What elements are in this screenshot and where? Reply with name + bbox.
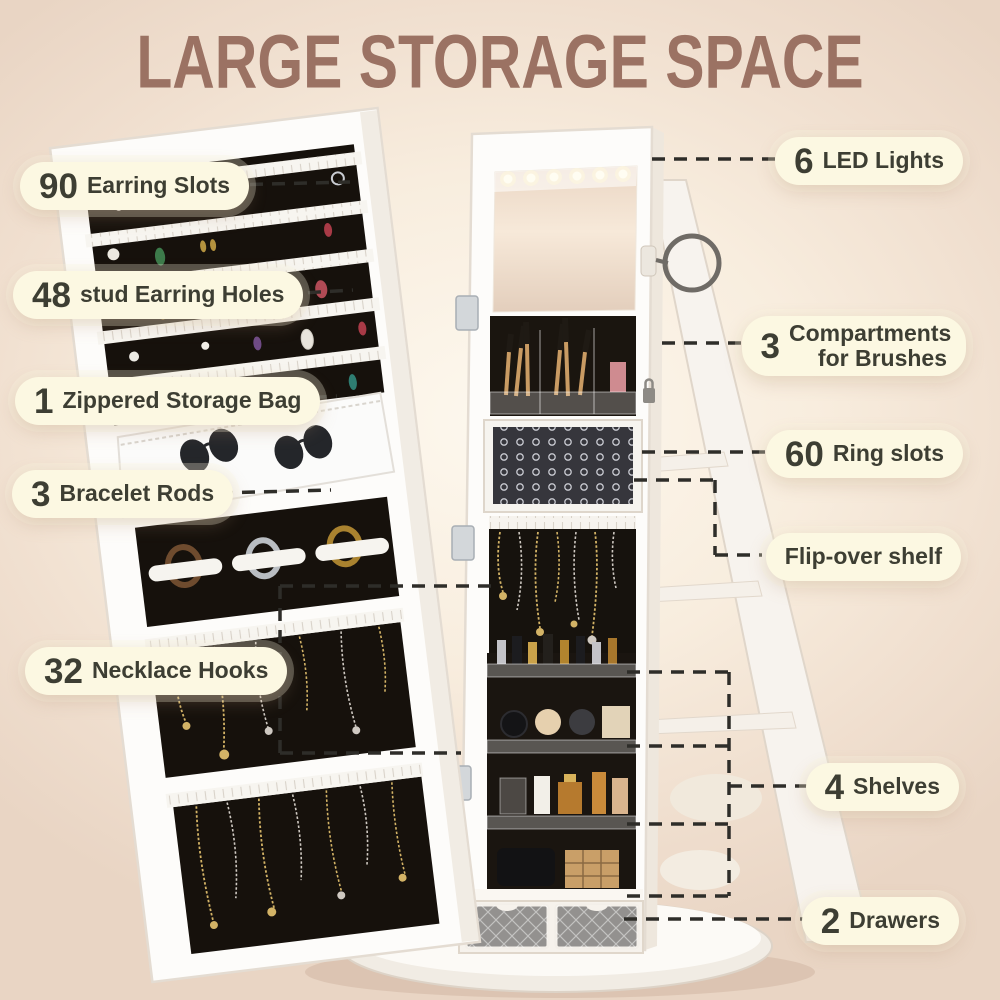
cabinet-body — [459, 127, 664, 953]
callout-label: LED Lights — [823, 148, 944, 173]
callout-number: 2 — [821, 904, 840, 939]
callout-label: Drawers — [849, 908, 940, 933]
callout-label: Compartments for Brushes — [789, 321, 947, 372]
callout-flip-over-shelf: Flip-over shelf — [766, 533, 961, 581]
callout-label: Earring Slots — [87, 173, 230, 198]
shelves-area — [487, 634, 636, 891]
callout-number: 60 — [785, 437, 824, 472]
callout-number: 90 — [39, 169, 78, 204]
page-title: LARGE STORAGE SPACE — [40, 18, 960, 105]
callout-label: Necklace Hooks — [92, 658, 268, 683]
callout-label: Flip-over shelf — [785, 544, 942, 569]
callout-number: 1 — [34, 384, 53, 419]
mirror — [493, 166, 637, 312]
callout-number: 6 — [794, 144, 813, 179]
drawers — [459, 901, 643, 953]
callout-number: 3 — [761, 329, 780, 364]
callout-brush-compartments: 3 Compartments for Brushes — [742, 316, 966, 376]
callout-label: Ring slots — [833, 441, 944, 466]
callout-drawers: 2 Drawers — [802, 897, 959, 945]
callout-label: Shelves — [853, 774, 940, 799]
callout-number: 4 — [825, 770, 844, 805]
brush-compartments — [490, 316, 636, 416]
callout-zippered-storage-bag: 1 Zippered Storage Bag — [15, 377, 320, 425]
callout-number: 3 — [31, 477, 50, 512]
callout-shelves: 4 Shelves — [806, 763, 959, 811]
callout-stud-earring-holes: 48 stud Earring Holes — [13, 271, 303, 319]
storage-infographic: LARGE STORAGE SPACE 90 Earring Slots 48 … — [0, 0, 1000, 1000]
cabinet-door — [50, 108, 480, 982]
callout-number: 32 — [44, 654, 83, 689]
callout-earring-slots: 90 Earring Slots — [20, 162, 249, 210]
callout-bracelet-rods: 3 Bracelet Rods — [12, 470, 233, 518]
ring-slots-tray — [484, 420, 642, 512]
callout-necklace-hooks: 32 Necklace Hooks — [25, 647, 287, 695]
callout-label: Zippered Storage Bag — [62, 388, 301, 413]
callout-label: Bracelet Rods — [59, 481, 214, 506]
door-necklace-panel-2 — [166, 763, 442, 955]
callout-ring-slots: 60 Ring slots — [766, 430, 963, 478]
callout-number: 48 — [32, 278, 71, 313]
cabinet-necklace-area — [489, 516, 636, 653]
callout-led-lights: 6 LED Lights — [775, 137, 963, 185]
callout-label: stud Earring Holes — [80, 282, 284, 307]
